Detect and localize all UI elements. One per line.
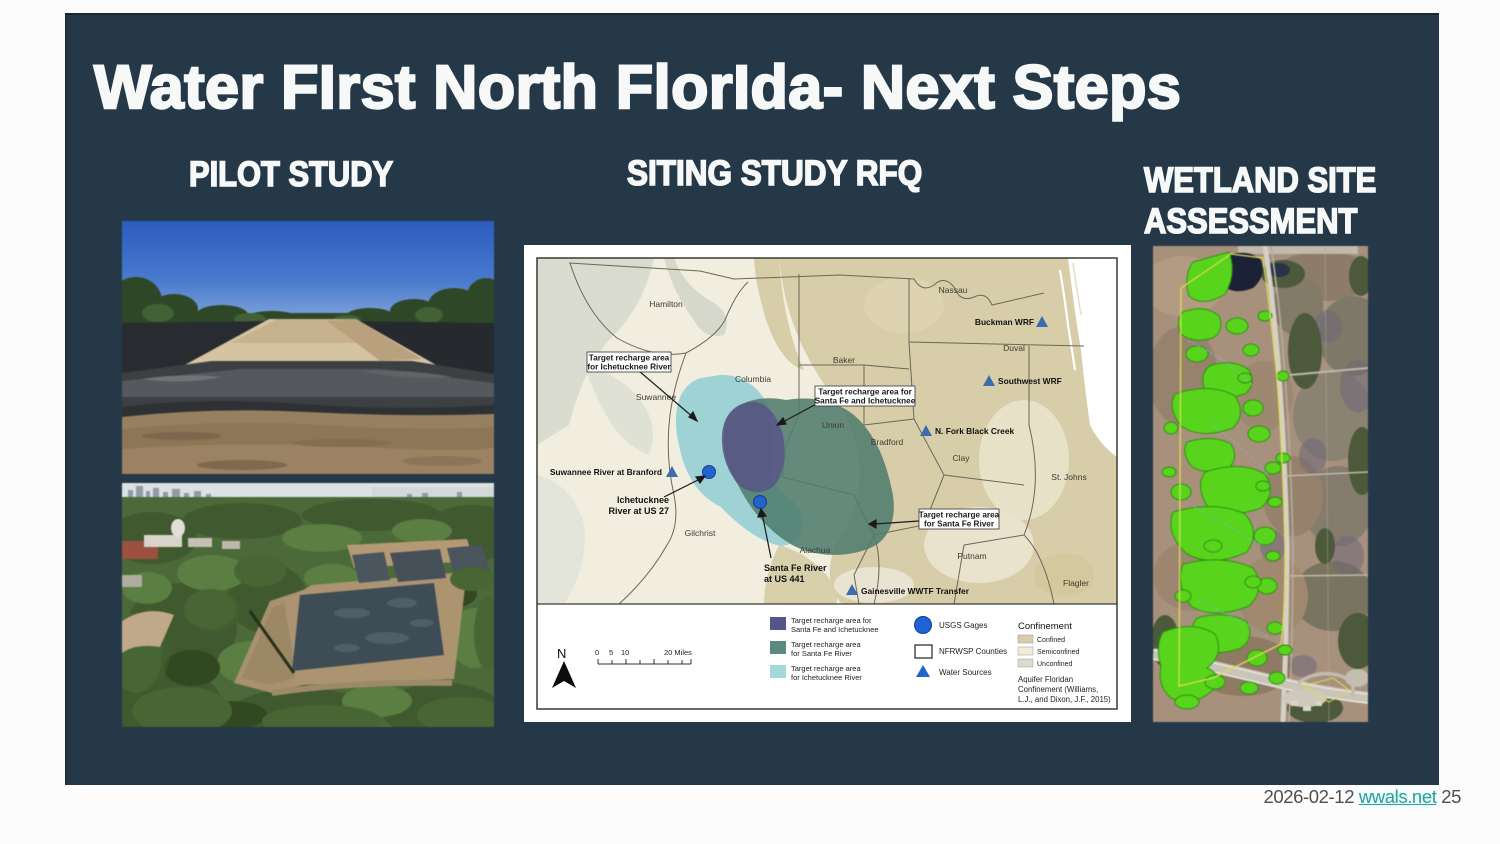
svg-text:Confined: Confined	[1037, 637, 1065, 644]
svg-text:Unconfined: Unconfined	[1037, 661, 1073, 668]
svg-text:Confinement (Williams,: Confinement (Williams,	[1018, 685, 1098, 694]
svg-text:USGS Gages: USGS Gages	[939, 621, 987, 630]
svg-text:Aquifer Floridan: Aquifer Floridan	[1018, 675, 1073, 684]
svg-text:Alachua: Alachua	[800, 545, 831, 555]
svg-text:Southwest WRF: Southwest WRF	[998, 376, 1062, 386]
svg-text:River at US 27: River at US 27	[608, 506, 669, 516]
svg-text:Santa Fe and Ichetucknee: Santa Fe and Ichetucknee	[815, 397, 916, 406]
svg-text:N: N	[557, 646, 566, 661]
svg-text:Santa Fe and Ichetucknee: Santa Fe and Ichetucknee	[791, 625, 879, 634]
svg-text:Duval: Duval	[1003, 343, 1025, 353]
svg-text:Semiconfined: Semiconfined	[1037, 649, 1080, 656]
svg-text:Water Sources: Water Sources	[939, 668, 992, 677]
svg-text:Union: Union	[822, 420, 844, 430]
svg-text:5: 5	[609, 648, 613, 657]
svg-text:0: 0	[595, 648, 599, 657]
svg-text:St. Johns: St. Johns	[1051, 472, 1086, 482]
svg-text:Suwannee River at Branford: Suwannee River at Branford	[550, 467, 662, 477]
svg-text:for Santa Fe River: for Santa Fe River	[924, 520, 995, 529]
svg-text:Target recharge area: Target recharge area	[791, 664, 861, 673]
svg-text:Target recharge area for: Target recharge area for	[818, 388, 912, 397]
svg-text:Target recharge area: Target recharge area	[589, 354, 670, 363]
svg-text:Santa Fe River: Santa Fe River	[764, 563, 827, 573]
svg-text:Bradford: Bradford	[871, 437, 904, 447]
svg-text:Target recharge area for: Target recharge area for	[791, 616, 872, 625]
svg-text:Target recharge area: Target recharge area	[791, 640, 861, 649]
svg-text:Suwannee: Suwannee	[636, 392, 676, 402]
svg-text:10: 10	[621, 648, 629, 657]
svg-text:at US 441: at US 441	[764, 574, 805, 584]
svg-text:for Ichetucknee River: for Ichetucknee River	[587, 363, 671, 372]
svg-text:for Ichetucknee River: for Ichetucknee River	[791, 673, 862, 682]
svg-text:L.J., and Dixon, J.F., 2015): L.J., and Dixon, J.F., 2015)	[1018, 695, 1111, 704]
svg-text:for Santa Fe River: for Santa Fe River	[791, 649, 852, 658]
svg-text:Baker: Baker	[833, 355, 855, 365]
svg-text:Hamilton: Hamilton	[649, 299, 683, 309]
svg-text:Confinement: Confinement	[1018, 621, 1072, 632]
svg-text:NFRWSP Counties: NFRWSP Counties	[939, 647, 1007, 656]
svg-text:Columbia: Columbia	[735, 374, 771, 384]
svg-text:Putnam: Putnam	[957, 551, 986, 561]
svg-text:Target recharge area: Target recharge area	[919, 511, 1000, 520]
svg-text:Ichetucknee: Ichetucknee	[617, 495, 669, 505]
svg-text:Gainesville WWTF Transfer: Gainesville WWTF Transfer	[861, 586, 970, 596]
svg-text:Clay: Clay	[952, 453, 970, 463]
svg-text:Gilchrist: Gilchrist	[685, 528, 716, 538]
svg-text:N. Fork Black Creek: N. Fork Black Creek	[935, 426, 1014, 436]
svg-text:Buckman WRF: Buckman WRF	[975, 317, 1034, 327]
svg-text:Nassau: Nassau	[939, 285, 968, 295]
svg-text:20 Miles: 20 Miles	[664, 648, 692, 657]
svg-text:Flagler: Flagler	[1063, 578, 1089, 588]
